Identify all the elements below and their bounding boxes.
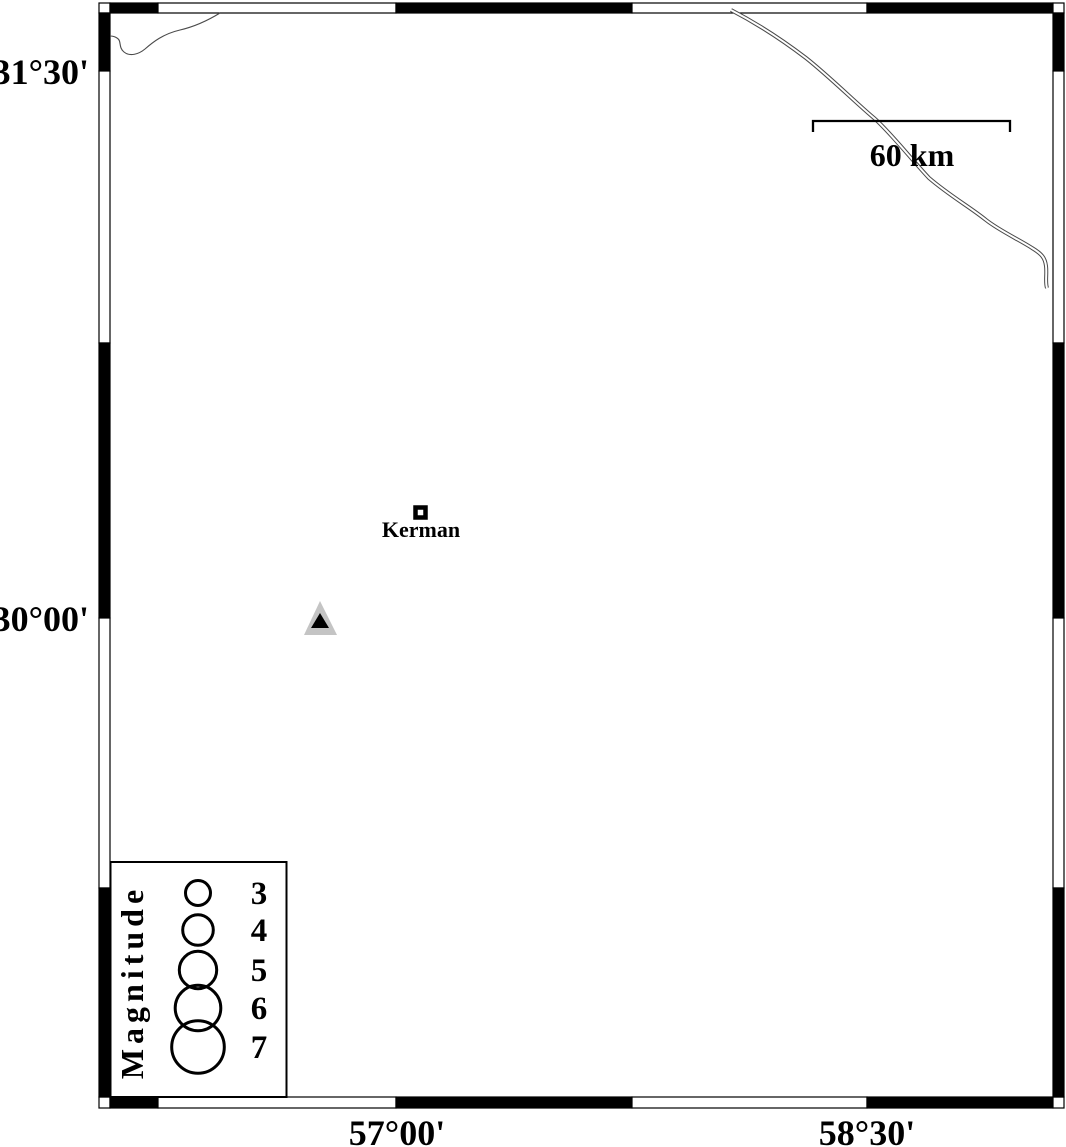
city-square-icon: [416, 508, 426, 518]
city-label: Kerman: [382, 517, 460, 542]
river-line: [110, 13, 220, 55]
map-canvas: 60 km 31°30' 30°00' 57°00' 58°30' Kerman…: [0, 0, 1066, 1147]
scale-bar: 60 km: [813, 121, 1010, 173]
left-axis-label-top: 31°30': [0, 52, 89, 92]
frame-corner: [99, 3, 110, 13]
frame-corner: [99, 1097, 110, 1108]
frame-segment: [99, 13, 110, 71]
frame-segment: [396, 3, 632, 13]
legend-value-m4: 4: [251, 913, 268, 949]
station-marker: [304, 601, 337, 635]
legend-value-m7: 7: [251, 1030, 268, 1066]
frame-segment: [158, 3, 396, 13]
scale-bar-bracket: [813, 121, 1010, 132]
seismicity-map: 60 km 31°30' 30°00' 57°00' 58°30' Kerman…: [0, 0, 1066, 1147]
frame-segment: [1053, 888, 1064, 1097]
frame-segment: [99, 71, 110, 343]
frame-segment: [1053, 618, 1064, 888]
frame-segment: [99, 888, 110, 1097]
scale-bar-label: 60 km: [870, 137, 955, 173]
legend-value-m5: 5: [251, 953, 268, 989]
frame-segment: [1053, 343, 1064, 618]
legend-value-m3: 3: [251, 876, 268, 912]
magnitude-legend: Magnitude 3 4 5 6 7: [111, 862, 287, 1097]
frame-segment: [1053, 13, 1064, 71]
city-marker-kerman: Kerman: [382, 508, 460, 543]
frame-segment: [99, 618, 110, 888]
left-axis-label-bottom: 30°00': [0, 599, 89, 639]
frame-segment: [158, 1097, 396, 1108]
bottom-axis-label-right: 58°30': [819, 1113, 915, 1147]
frame-segment: [632, 1097, 867, 1108]
frame-corner: [1053, 3, 1064, 13]
frame-segment: [396, 1097, 632, 1108]
legend-title: Magnitude: [114, 885, 150, 1079]
frame-segment: [867, 1097, 1053, 1108]
bottom-axis-label-left: 57°00': [349, 1113, 445, 1147]
frame-segment: [110, 1097, 158, 1108]
frame-segment: [632, 3, 867, 13]
legend-value-m6: 6: [251, 991, 268, 1027]
frame-segment: [99, 343, 110, 618]
frame-segment: [1053, 71, 1064, 343]
frame-corner: [1053, 1097, 1064, 1108]
frame-segment: [867, 3, 1053, 13]
frame-segment: [110, 3, 158, 13]
